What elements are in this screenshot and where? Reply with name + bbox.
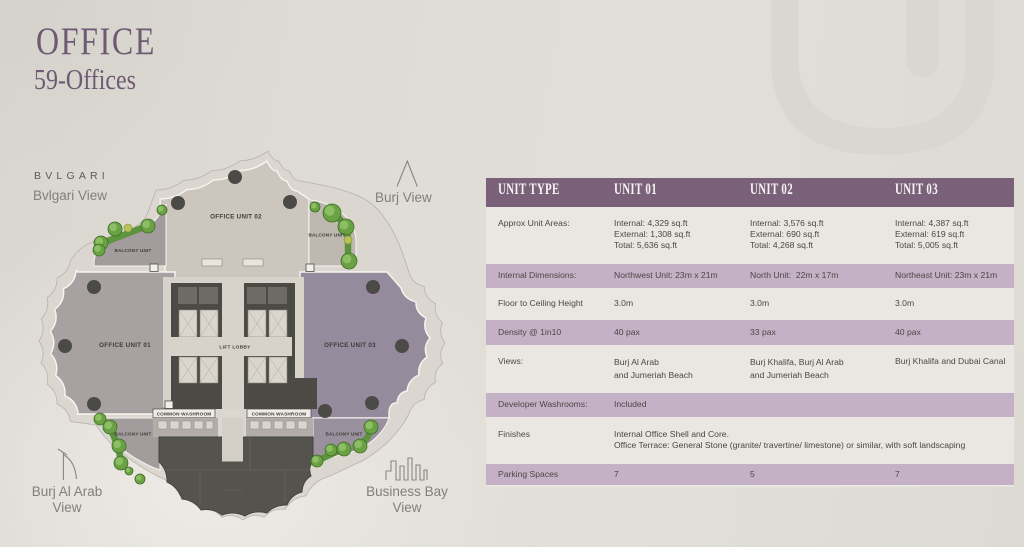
svg-text:BALCONY UNIT: BALCONY UNIT: [114, 248, 151, 253]
svg-text:BALCONY UNIT: BALCONY UNIT: [114, 432, 151, 437]
svg-text:COMMON WASHROOM: COMMON WASHROOM: [252, 412, 307, 417]
svg-text:OFFICE UNIT 03: OFFICE UNIT 03: [324, 342, 376, 349]
svg-text:BALCONY UNIT: BALCONY UNIT: [325, 432, 362, 437]
svg-text:COMMON WASHROOM: COMMON WASHROOM: [157, 412, 212, 417]
svg-text:BALCONY UNIT: BALCONY UNIT: [308, 233, 345, 238]
svg-text:LIFT LOBBY: LIFT LOBBY: [219, 344, 251, 350]
svg-text:OFFICE UNIT 02: OFFICE UNIT 02: [210, 214, 262, 221]
svg-text:OFFICE UNIT 01: OFFICE UNIT 01: [99, 342, 151, 349]
